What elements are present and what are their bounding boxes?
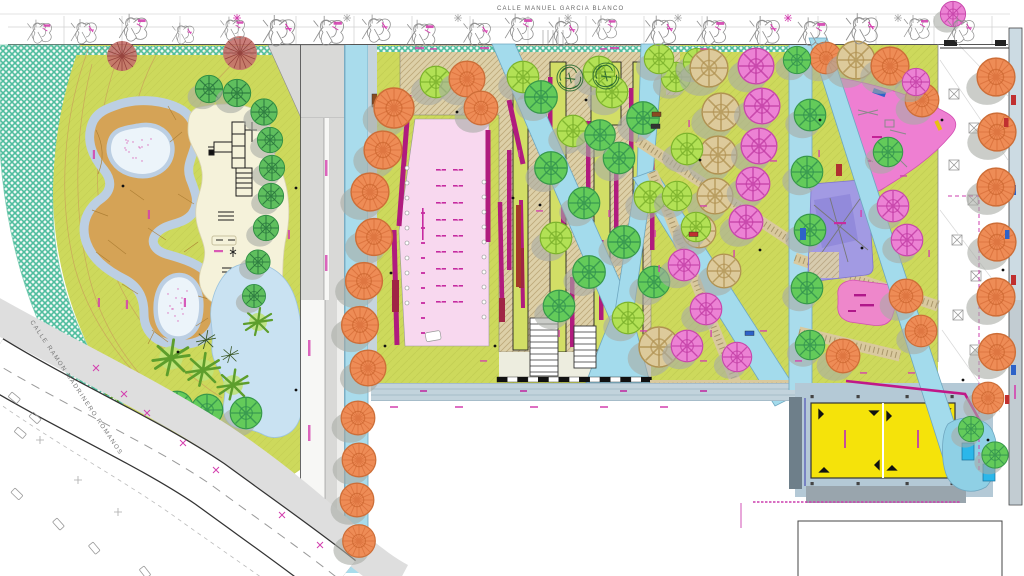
svg-text:CALLE MANUEL GARCIA BLANCO: CALLE MANUEL GARCIA BLANCO [497, 6, 624, 12]
